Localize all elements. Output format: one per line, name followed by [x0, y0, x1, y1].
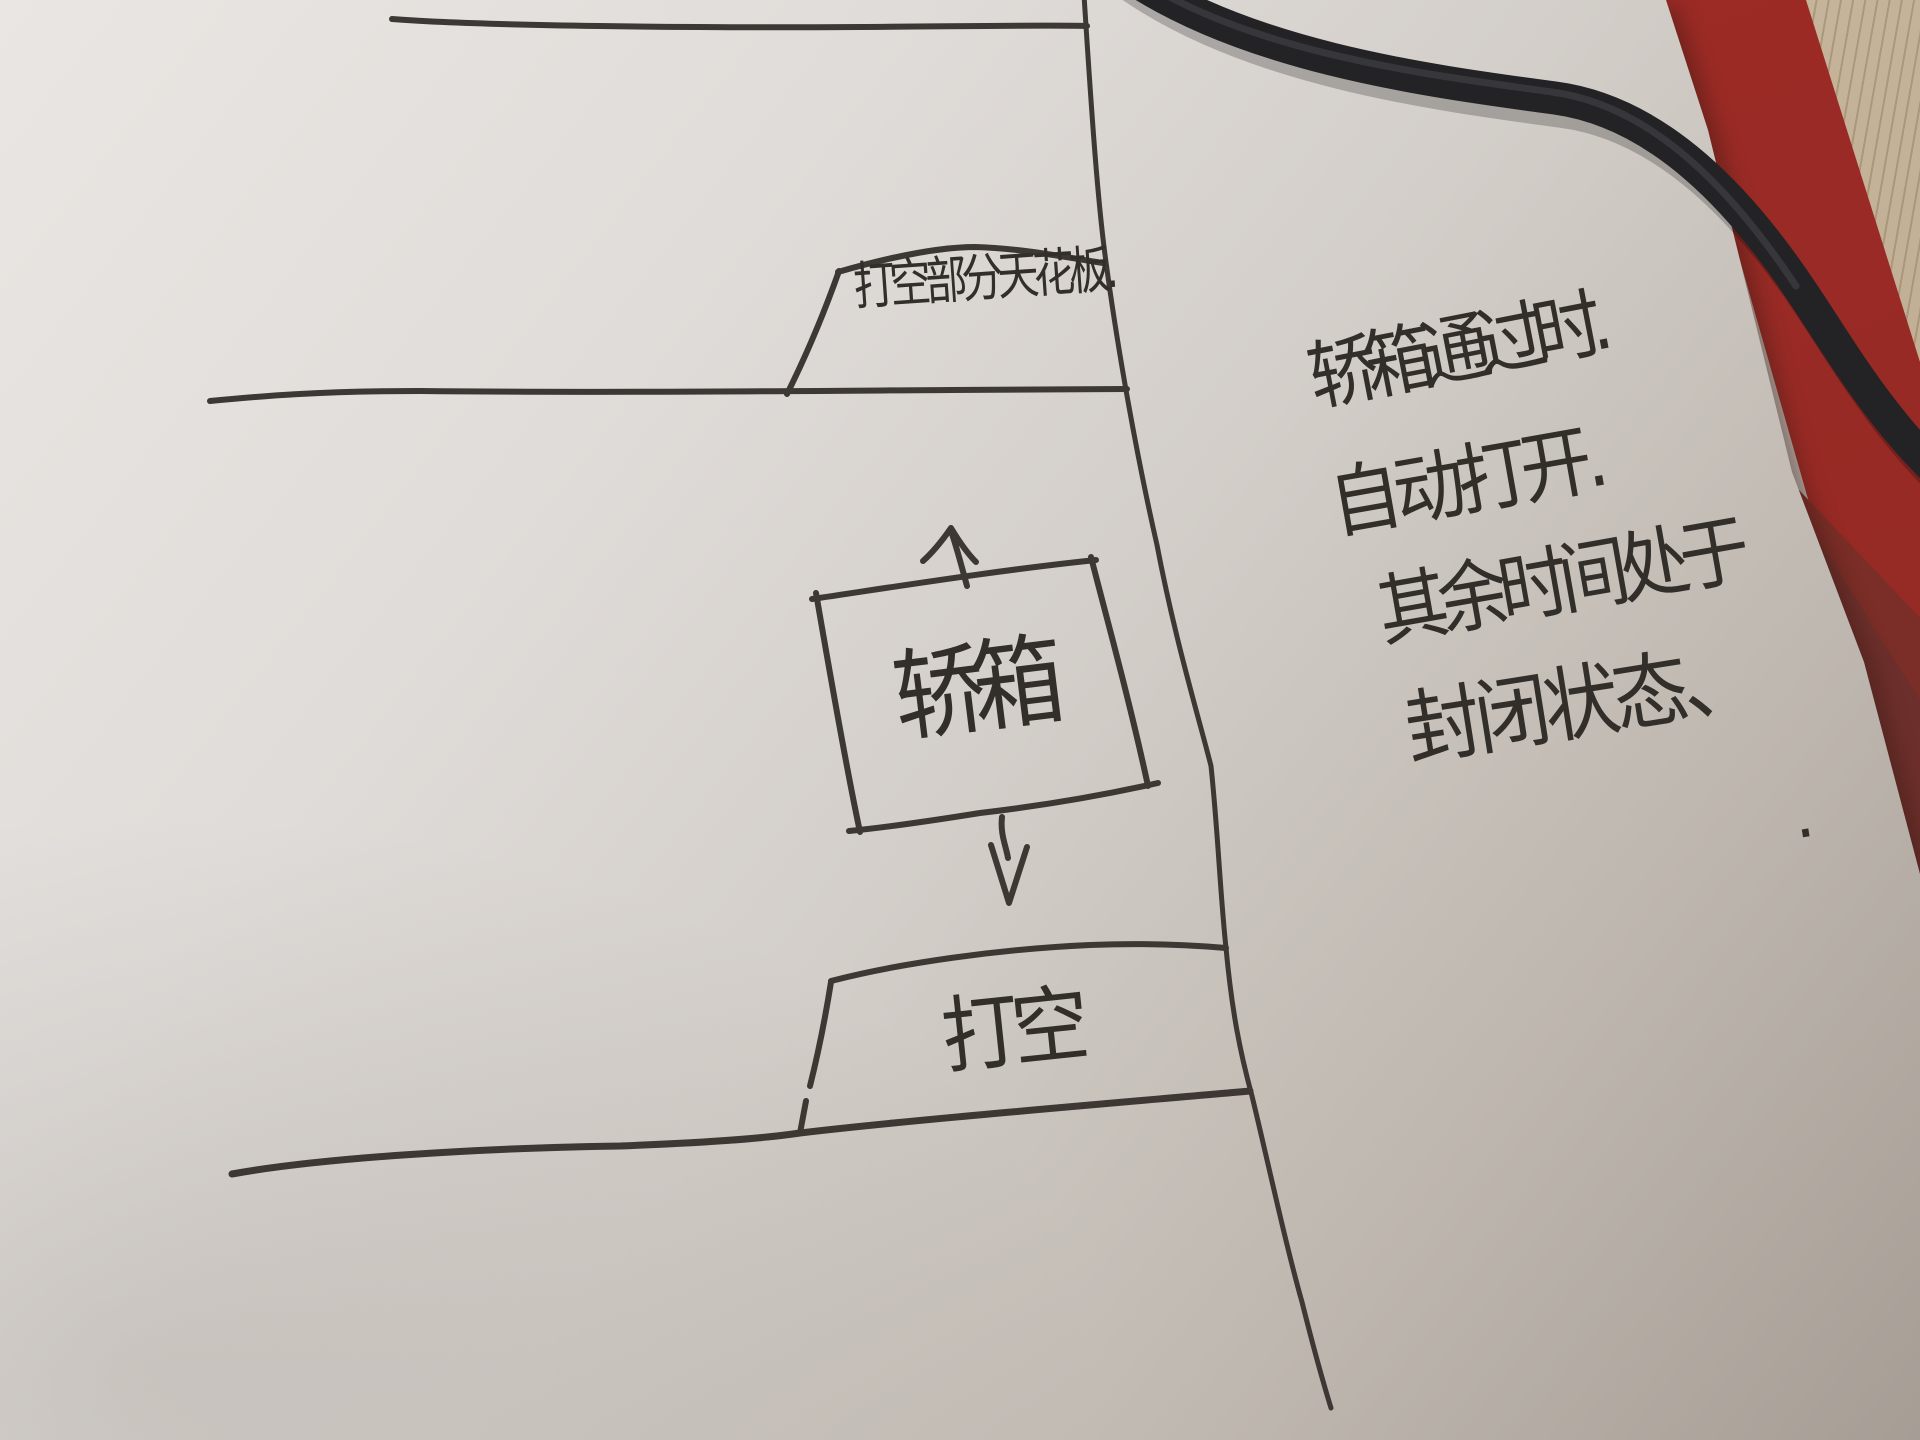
cable-shadow [1128, 0, 1920, 495]
black-cable [0, 0, 1920, 1440]
photo-of-sketch: { "scene": { "description": "Photo of a … [0, 0, 1920, 1440]
cable-wire [1120, 0, 1920, 482]
